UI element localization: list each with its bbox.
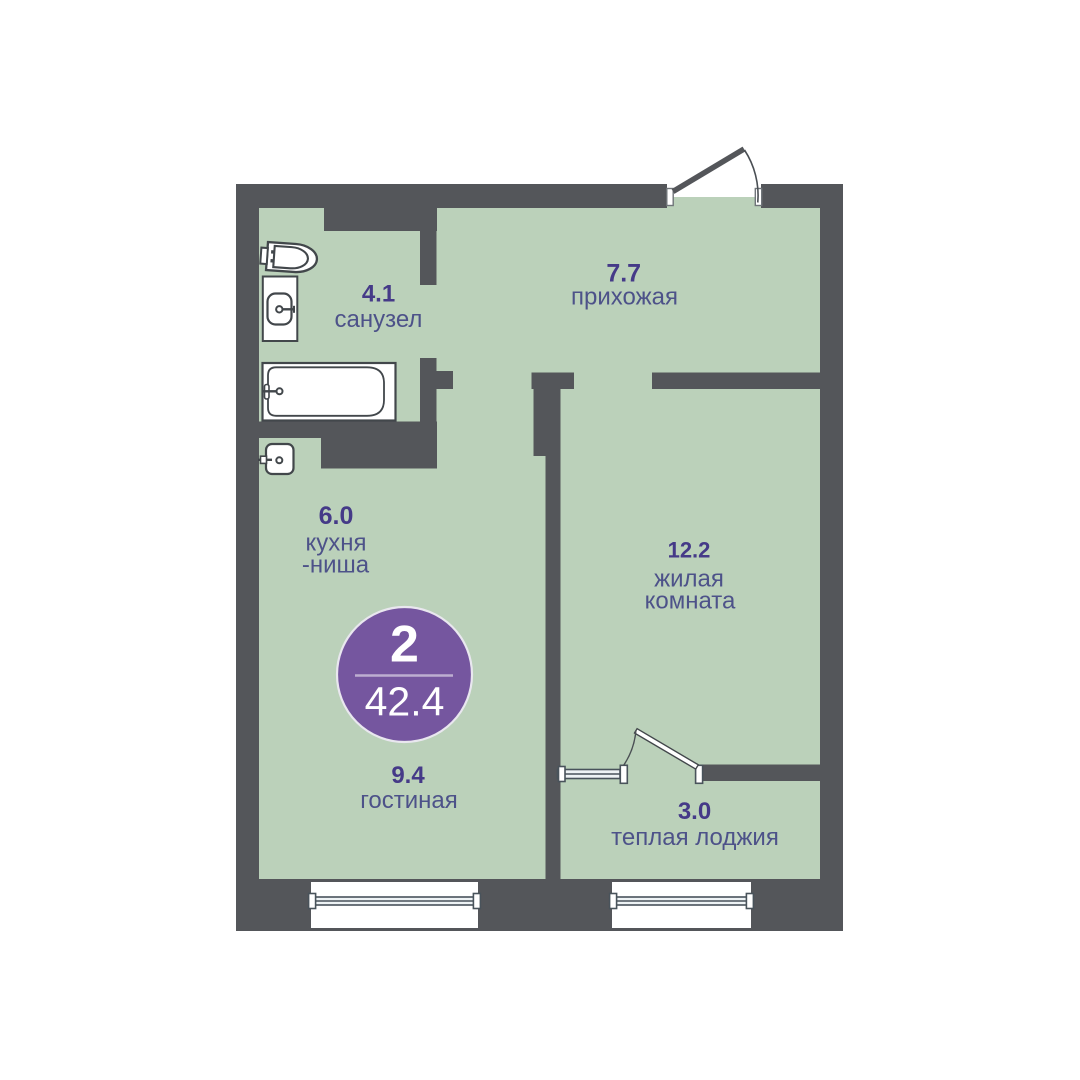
svg-text:12.2: 12.2 [668,538,711,563]
svg-text:4.1: 4.1 [362,281,395,308]
svg-text:6.0: 6.0 [319,502,354,530]
svg-text:комната: комната [645,587,736,614]
svg-text:теплая лоджия: теплая лоджия [611,824,779,851]
svg-text:3.0: 3.0 [678,798,711,825]
svg-text:2: 2 [390,616,419,674]
svg-text:прихожая: прихожая [571,284,678,311]
svg-text:гостиная: гостиная [360,787,458,814]
svg-text:9.4: 9.4 [391,762,425,789]
svg-text:42.4: 42.4 [365,679,445,725]
svg-text:санузел: санузел [335,306,423,333]
svg-text:-ниша: -ниша [302,552,370,579]
